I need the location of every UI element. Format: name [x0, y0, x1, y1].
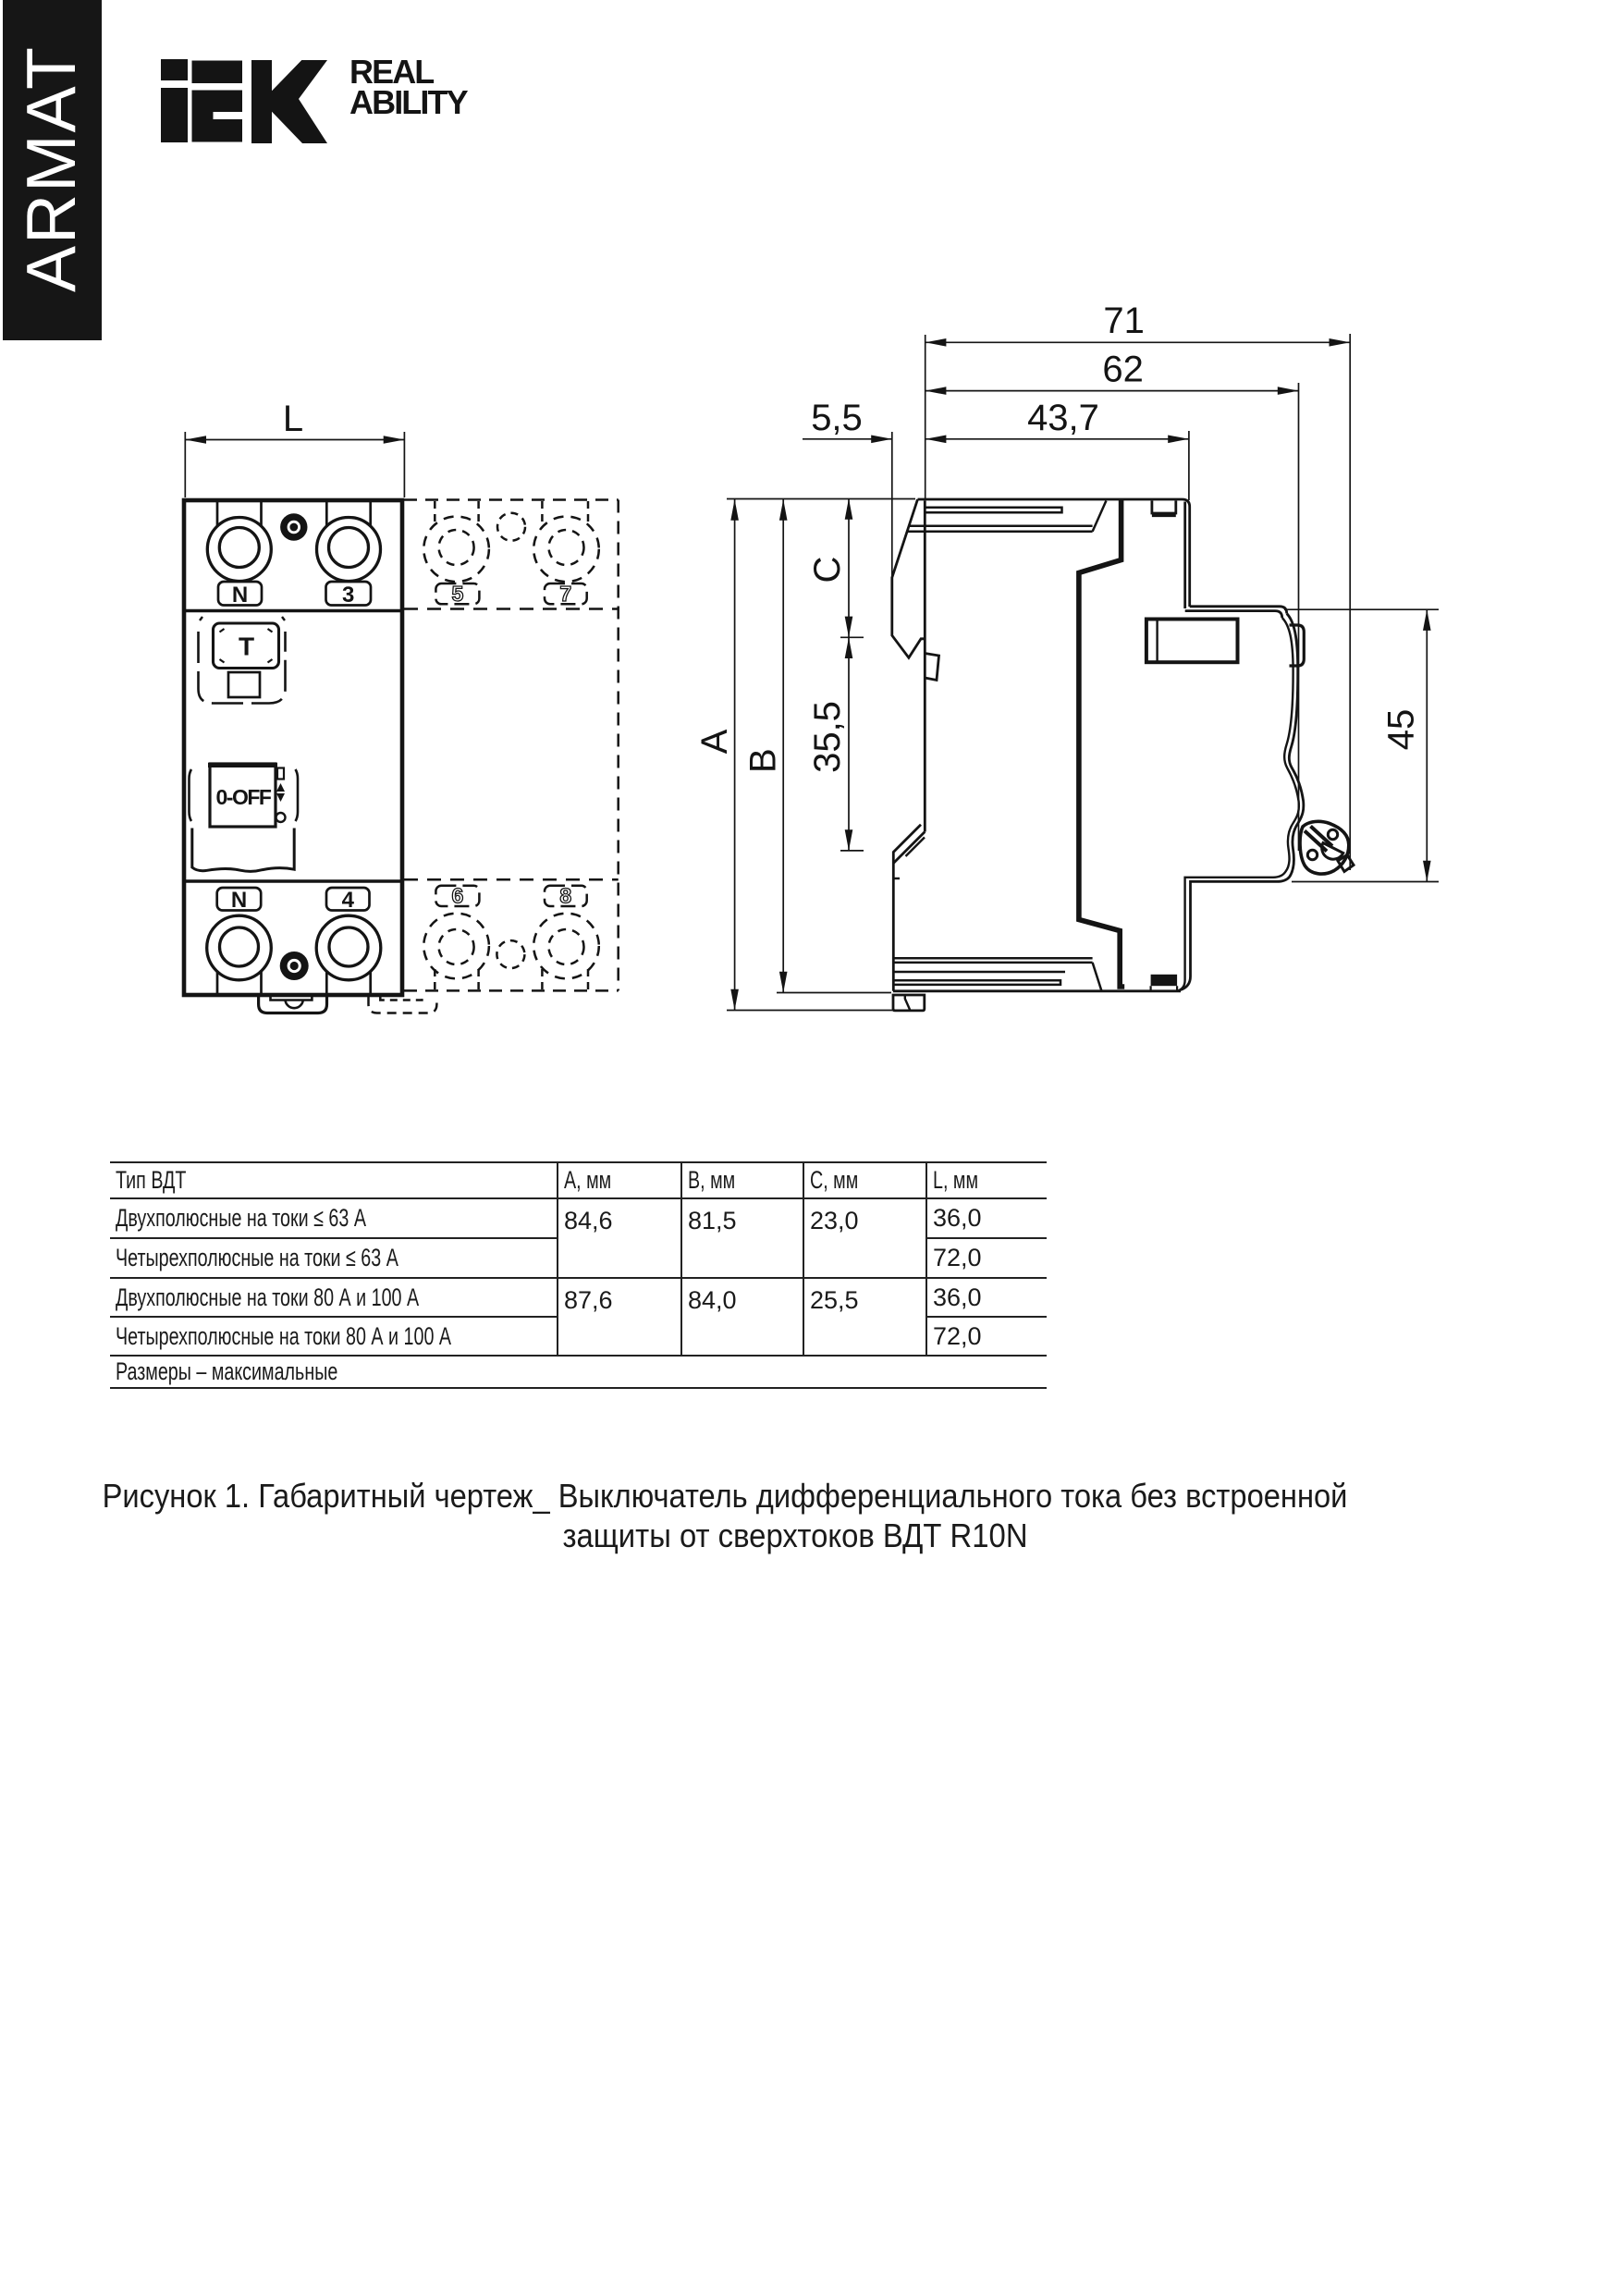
- svg-text:T: T: [239, 632, 254, 661]
- svg-text:4: 4: [342, 888, 355, 913]
- svg-text:43,7: 43,7: [1027, 398, 1099, 438]
- svg-text:62: 62: [1102, 350, 1144, 390]
- svg-text:6: 6: [452, 884, 464, 908]
- svg-text:5,5: 5,5: [811, 398, 863, 438]
- svg-text:B: B: [743, 748, 784, 773]
- svg-text:N: N: [231, 888, 247, 913]
- svg-text:3: 3: [342, 583, 354, 608]
- svg-text:45: 45: [1381, 709, 1422, 751]
- svg-text:0-OFF: 0-OFF: [216, 785, 272, 809]
- svg-text:L: L: [283, 399, 303, 439]
- svg-text:35,5: 35,5: [807, 701, 848, 773]
- svg-text:8: 8: [559, 884, 571, 908]
- svg-text:71: 71: [1103, 301, 1145, 341]
- svg-text:5: 5: [452, 582, 464, 606]
- svg-text:A: A: [694, 729, 735, 754]
- svg-text:N: N: [232, 583, 248, 608]
- svg-text:7: 7: [559, 582, 571, 606]
- svg-text:C: C: [807, 557, 848, 583]
